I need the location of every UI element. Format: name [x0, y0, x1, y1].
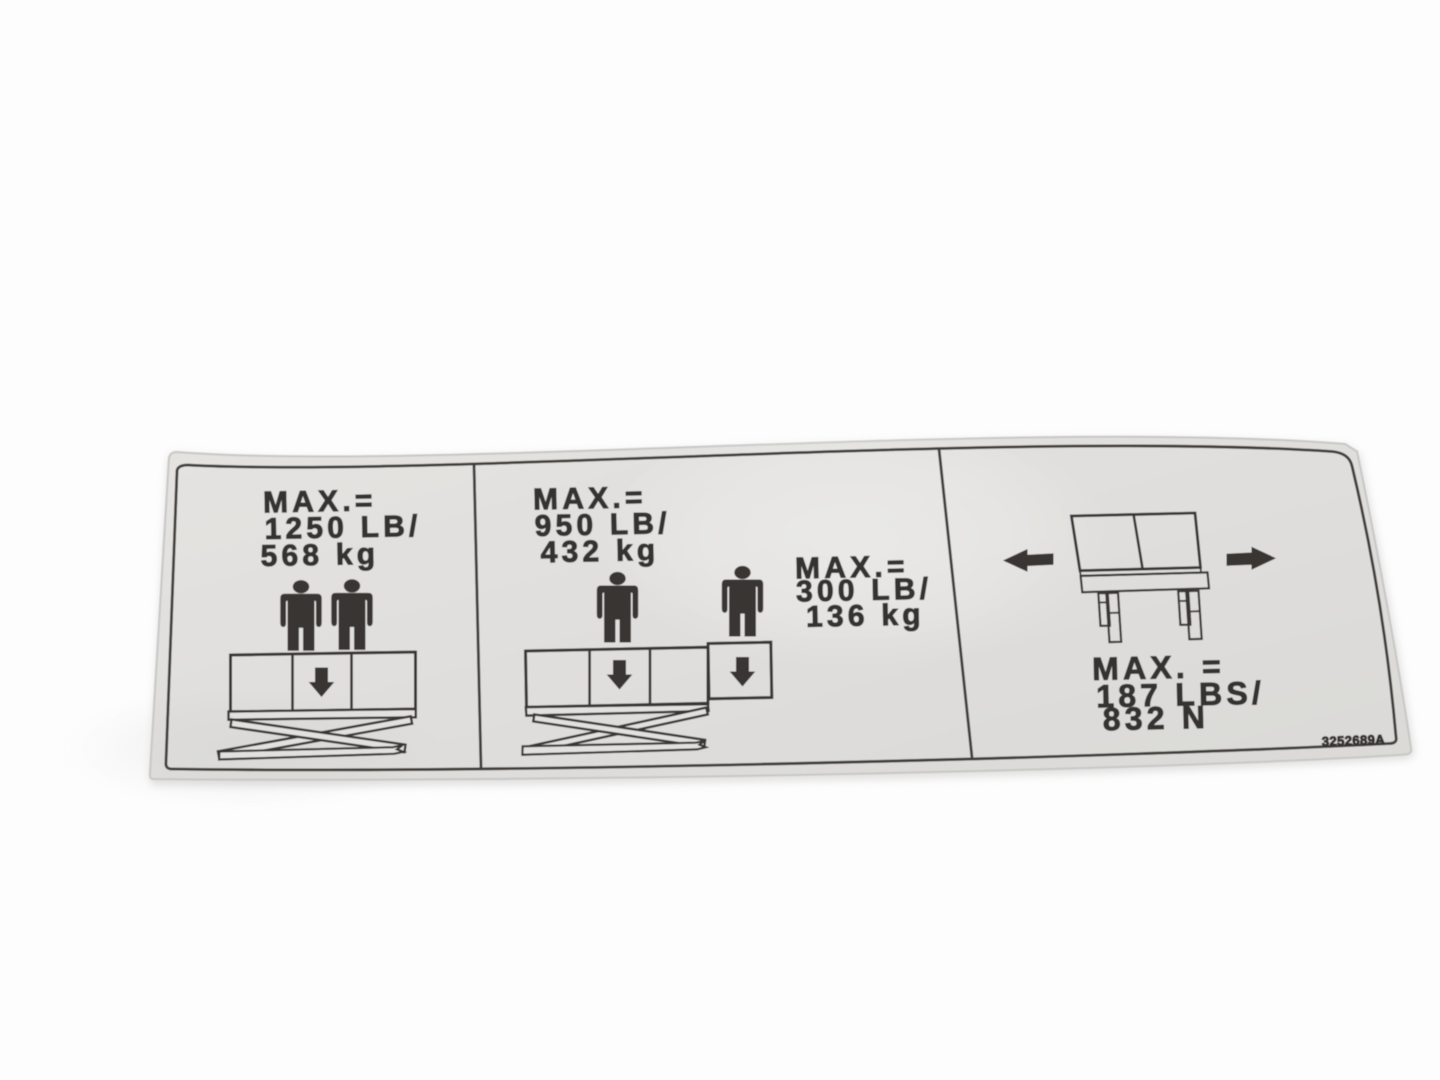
svg-text:832 N: 832 N: [1102, 699, 1209, 737]
svg-text:568 kg: 568 kg: [260, 538, 379, 573]
svg-text:432 kg: 432 kg: [540, 534, 659, 569]
svg-text:136 kg: 136 kg: [806, 598, 925, 633]
svg-text:3252689A: 3252689A: [1322, 732, 1386, 749]
